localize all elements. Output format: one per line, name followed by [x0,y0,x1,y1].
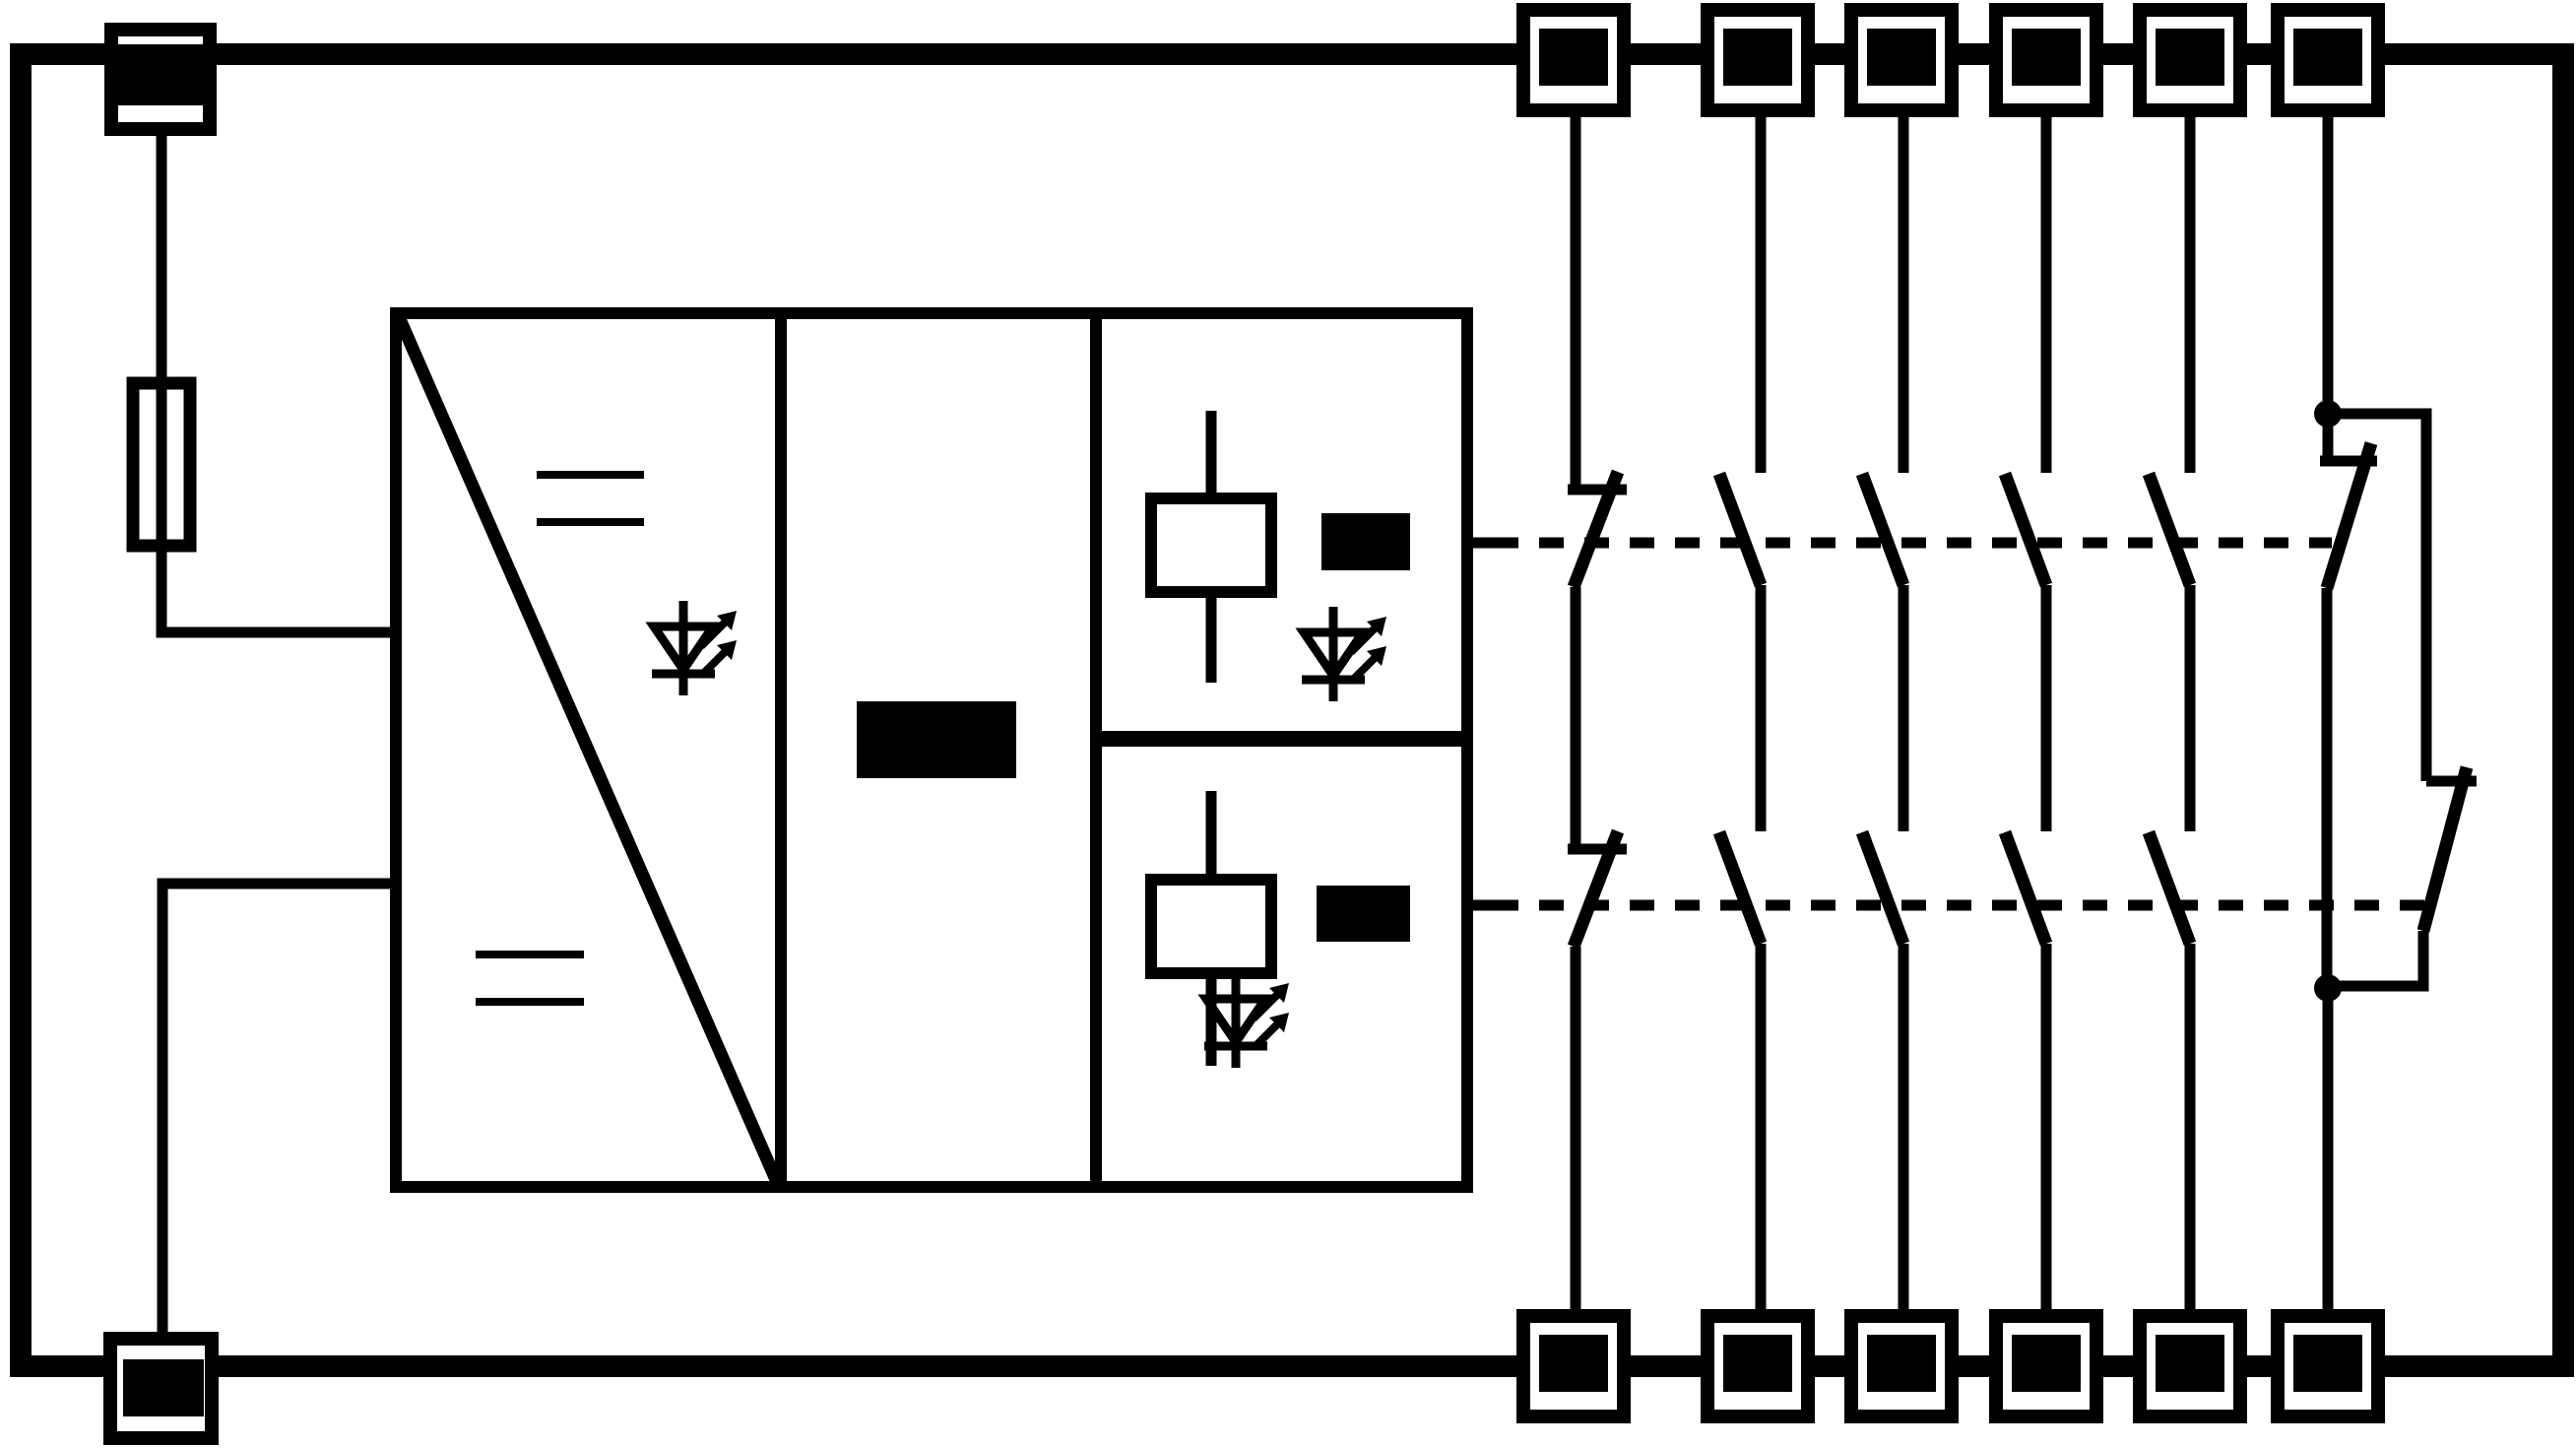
relay-module-schematic [0,0,2576,1448]
relay-1-label-redacted [1321,513,1410,570]
control-block [781,313,1096,1187]
junction-dot-bottom [2314,974,2342,1002]
power-converter-block [396,313,781,1187]
input-terminal-top-left [111,30,210,129]
output-terminal-bottom-2 [1707,1316,1808,1416]
output-terminal-bottom-1 [1523,1316,1624,1416]
output-terminal-top-2 [1707,10,1808,110]
return-terminal-bottom-left [110,1339,212,1438]
output-terminal-top-5 [2140,10,2240,110]
output-terminal-bottom-6 [2278,1316,2378,1416]
output-terminal-bottom-4 [1996,1316,2096,1416]
output-terminal-top-3 [1851,10,1952,110]
relay-2-label-redacted [1317,886,1410,942]
junction-dot-top [2314,400,2342,428]
output-terminal-bottom-5 [2140,1316,2240,1416]
relay-channel-1-block [1096,313,1467,737]
output-terminal-top-6 [2278,10,2378,110]
relay-1-coil [1151,498,1271,592]
schematic-page [0,0,2576,1448]
control-block-label-redacted [857,701,1016,778]
relay-channel-2-block [1096,741,1467,1187]
output-terminal-top-1 [1523,10,1624,110]
output-terminal-top-4 [1996,10,2096,110]
output-terminal-bottom-3 [1851,1316,1952,1416]
relay-2-coil [1151,880,1271,973]
